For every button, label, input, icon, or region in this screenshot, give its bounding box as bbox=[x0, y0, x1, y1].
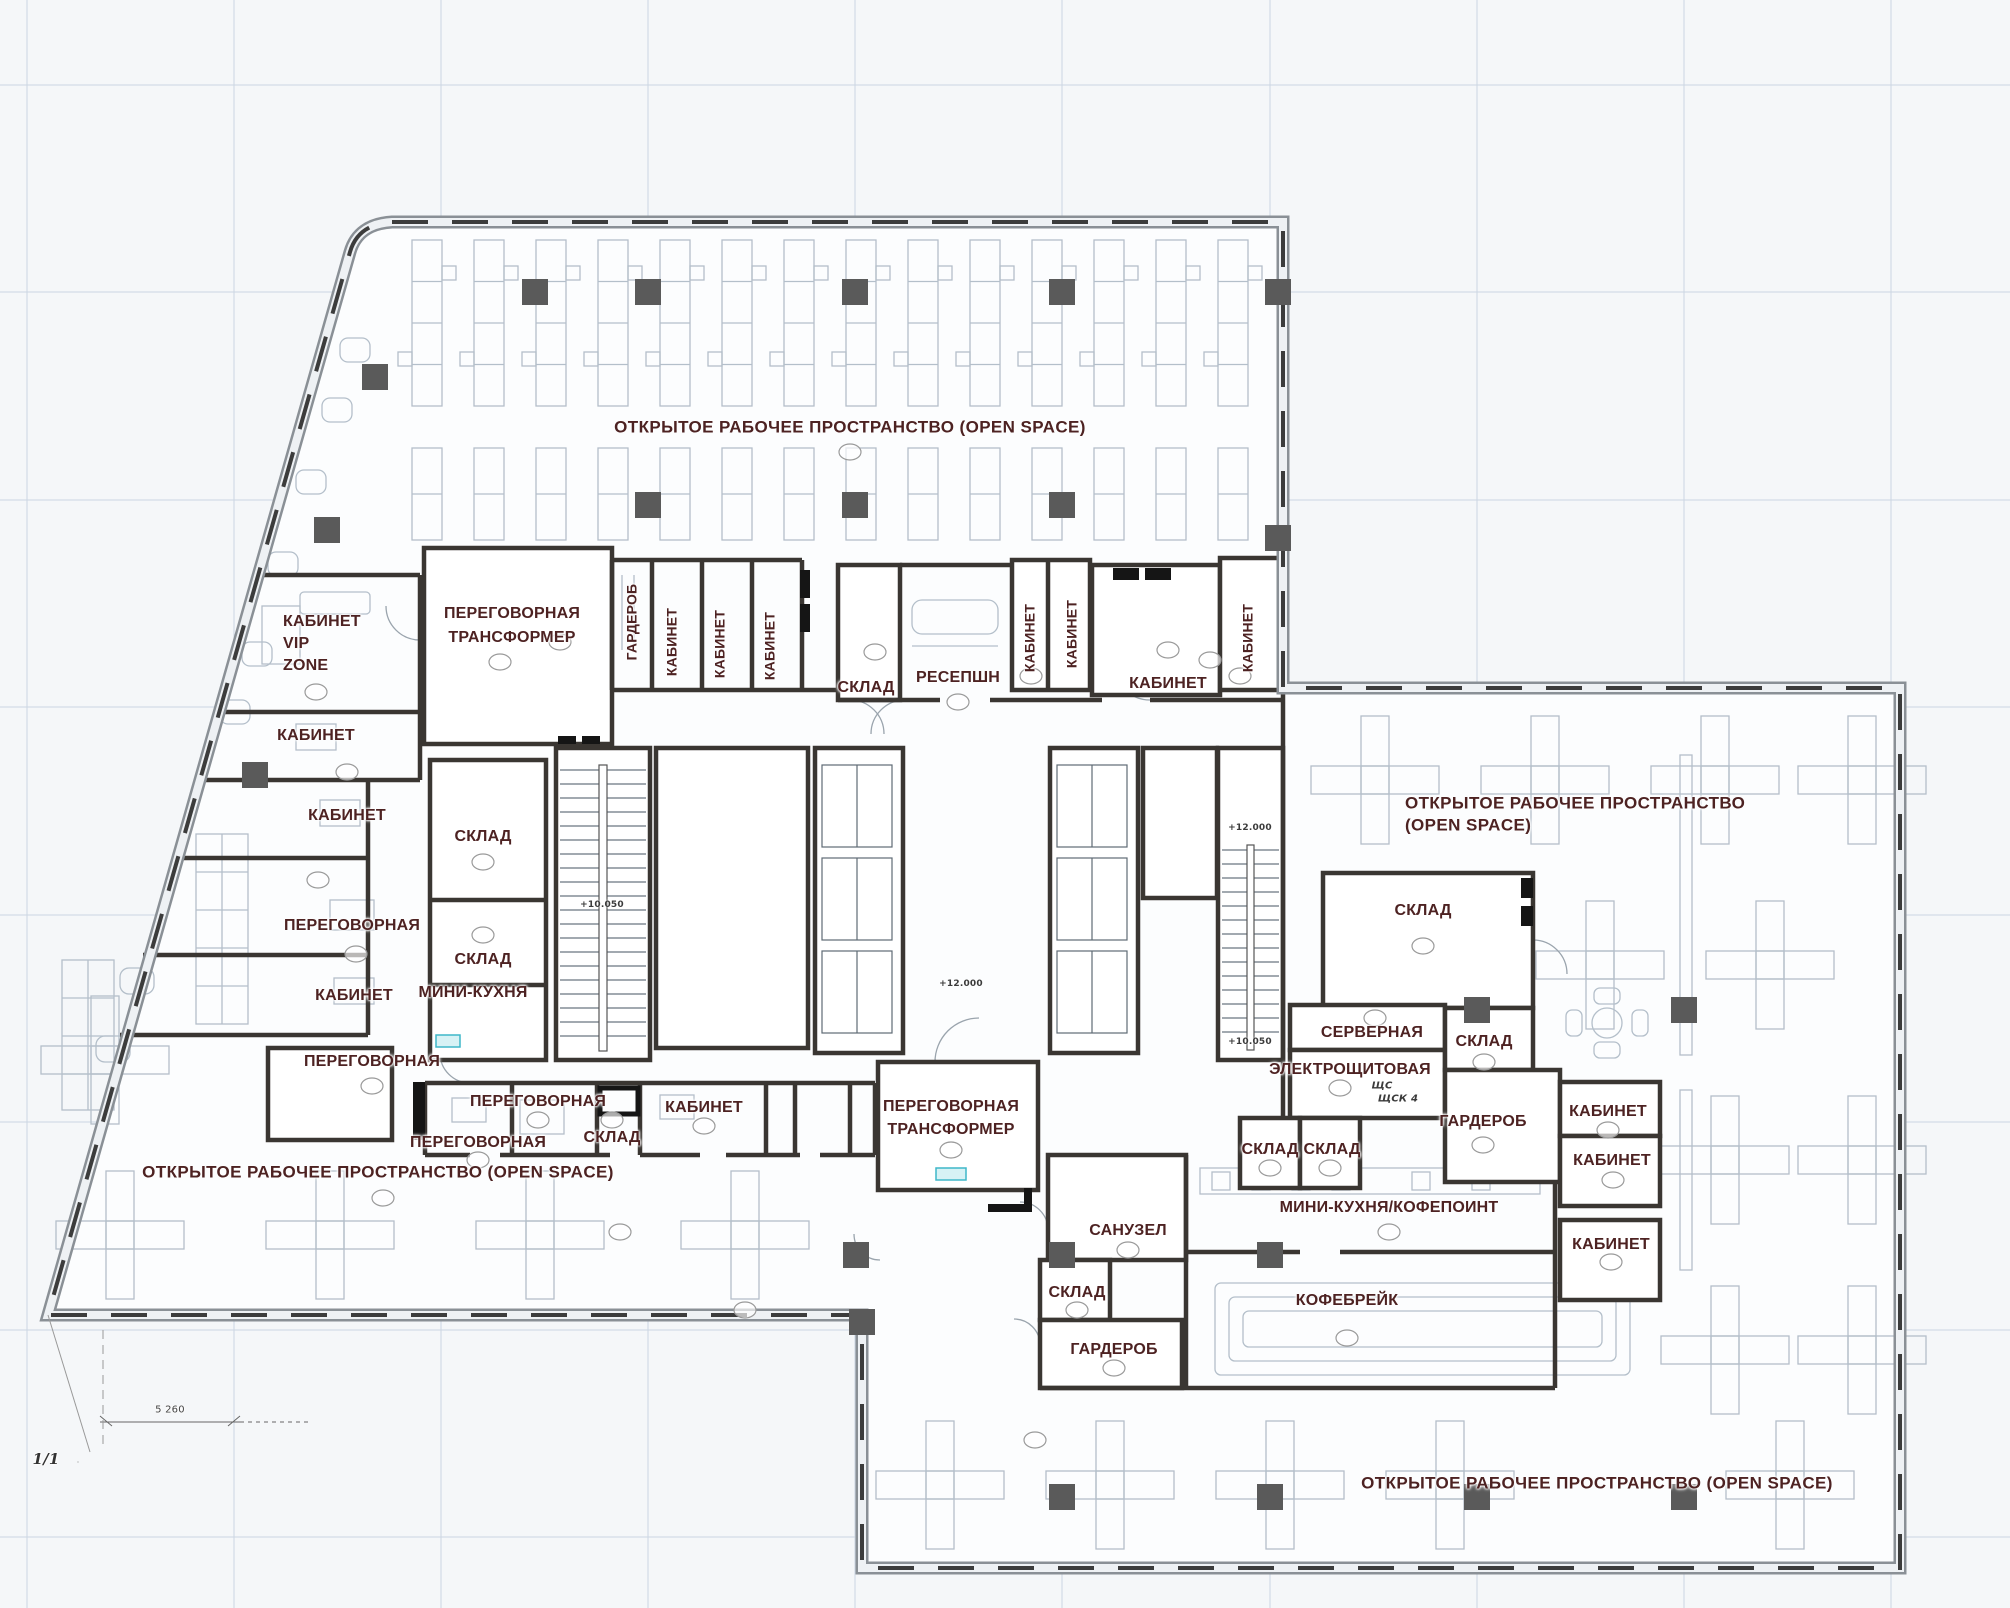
room-label-storage-bl: СКЛАД bbox=[583, 1128, 640, 1148]
room-label-meeting-bl-1: ПЕРЕГОВОРНАЯ bbox=[304, 1052, 440, 1072]
room-label-server-room: СЕРВЕРНАЯ bbox=[1321, 1023, 1423, 1043]
room-label-office-v4: КАБИНЕТ bbox=[1021, 604, 1039, 672]
room-label-wardrobe-right: ГАРДЕРОБ bbox=[1439, 1112, 1526, 1132]
room-label-mini-kitchen: МИНИ-КУХНЯ bbox=[418, 983, 527, 1003]
room-label-mini-kitchen-coffee: МИНИ-КУХНЯ/КОФЕПОИНТ bbox=[1280, 1198, 1499, 1218]
open-space-label-bottom-left: ОТКРЫТОЕ РАБОЧЕЕ ПРОСТРАНСТВО (OPEN SPAC… bbox=[142, 1161, 614, 1182]
room-label-meeting-transformer-1a: ПЕРЕГОВОРНАЯ bbox=[444, 604, 580, 624]
level-mark-lobby: +12.000 bbox=[939, 979, 983, 989]
room-label-storage-left-1: СКЛАД bbox=[454, 827, 511, 847]
room-label-meeting-bl-3: ПЕРЕГОВОРНАЯ bbox=[410, 1133, 546, 1153]
room-label-meeting-bl-2: ПЕРЕГОВОРНАЯ bbox=[470, 1092, 606, 1112]
room-label-wardrobe-bottom: ГАРДЕРОБ bbox=[1070, 1340, 1157, 1360]
open-space-label-top: ОТКРЫТОЕ РАБОЧЕЕ ПРОСТРАНСТВО (OPEN SPAC… bbox=[614, 416, 1086, 437]
room-label-office-r1: КАБИНЕТ bbox=[1569, 1102, 1647, 1122]
level-mark-stair-right-top: +12.000 bbox=[1228, 823, 1272, 833]
room-label-meeting-transformer-1b: ТРАНСФОРМЕР bbox=[448, 628, 575, 648]
open-space-label-right-1: ОТКРЫТОЕ РАБОЧЕЕ ПРОСТРАНСТВО bbox=[1405, 792, 1745, 813]
annotation-panel-2: ЩСК 4 bbox=[1378, 1094, 1418, 1105]
room-label-meeting-left: ПЕРЕГОВОРНАЯ bbox=[284, 916, 420, 936]
open-space-label-bottom-right: ОТКРЫТОЕ РАБОЧЕЕ ПРОСТРАНСТВО (OPEN SPAC… bbox=[1361, 1472, 1833, 1493]
room-label-office-bl: КАБИНЕТ bbox=[665, 1098, 743, 1118]
room-label-wc: САНУЗЕЛ bbox=[1089, 1221, 1167, 1241]
room-label-office-v1: КАБИНЕТ bbox=[663, 608, 681, 676]
room-label-meeting-transformer-2b: ТРАНСФОРМЕР bbox=[887, 1120, 1014, 1140]
room-label-office-v2: КАБИНЕТ bbox=[711, 610, 729, 678]
room-label-office-big: КАБИНЕТ bbox=[1129, 674, 1207, 694]
room-label-storage-b: СКЛАД bbox=[1048, 1283, 1105, 1303]
axis-text: 1/1 bbox=[33, 1450, 60, 1468]
room-label-office-v6: КАБИНЕТ bbox=[1239, 604, 1257, 672]
dimension-text: 5 260 bbox=[155, 1405, 185, 1416]
floor-plan-page: ОТКРЫТОЕ РАБОЧЕЕ ПРОСТРАНСТВО (OPEN SPAC… bbox=[0, 0, 2010, 1608]
room-label-storage-r1: СКЛАД bbox=[1455, 1032, 1512, 1052]
room-label-office-r2: КАБИНЕТ bbox=[1573, 1151, 1651, 1171]
room-label-office-r3: КАБИНЕТ bbox=[1572, 1235, 1650, 1255]
open-space-label-right-2: (OPEN SPACE) bbox=[1405, 814, 1531, 835]
room-label-storage-left-2: СКЛАД bbox=[454, 950, 511, 970]
room-label-office-v5: КАБИНЕТ bbox=[1063, 600, 1081, 668]
room-label-storage-right-big: СКЛАД bbox=[1394, 901, 1451, 921]
room-label-office-v3: КАБИНЕТ bbox=[761, 612, 779, 680]
level-mark-stair-left: +10.050 bbox=[580, 900, 624, 910]
annotation-panel-1: ЩС bbox=[1372, 1081, 1393, 1092]
room-label-vip-1: КАБИНЕТ bbox=[283, 612, 361, 632]
room-label-storage-r2: СКЛАД bbox=[1241, 1140, 1298, 1160]
room-label-vip-2: VIP bbox=[283, 634, 309, 654]
room-label-reception: РЕСЕПШН bbox=[916, 668, 1000, 688]
room-label-wardrobe-mid: ГАРДЕРОБ bbox=[623, 584, 641, 661]
room-label-storage-r3: СКЛАД bbox=[1303, 1140, 1360, 1160]
level-mark-stair-right-bottom: +10.050 bbox=[1228, 1037, 1272, 1047]
room-label-meeting-transformer-2a: ПЕРЕГОВОРНАЯ bbox=[883, 1097, 1019, 1117]
room-label-office-left-3: КАБИНЕТ bbox=[315, 986, 393, 1006]
room-label-coffee-break: КОФЕБРЕЙК bbox=[1296, 1291, 1398, 1311]
room-label-office-left-1: КАБИНЕТ bbox=[277, 726, 355, 746]
room-label-vip-3: ZONE bbox=[283, 656, 328, 676]
room-label-storage-mid: СКЛАД bbox=[837, 678, 894, 698]
room-label-electrical-room: ЭЛЕКТРОЩИТОВАЯ bbox=[1269, 1060, 1431, 1080]
room-label-office-left-2: КАБИНЕТ bbox=[308, 806, 386, 826]
